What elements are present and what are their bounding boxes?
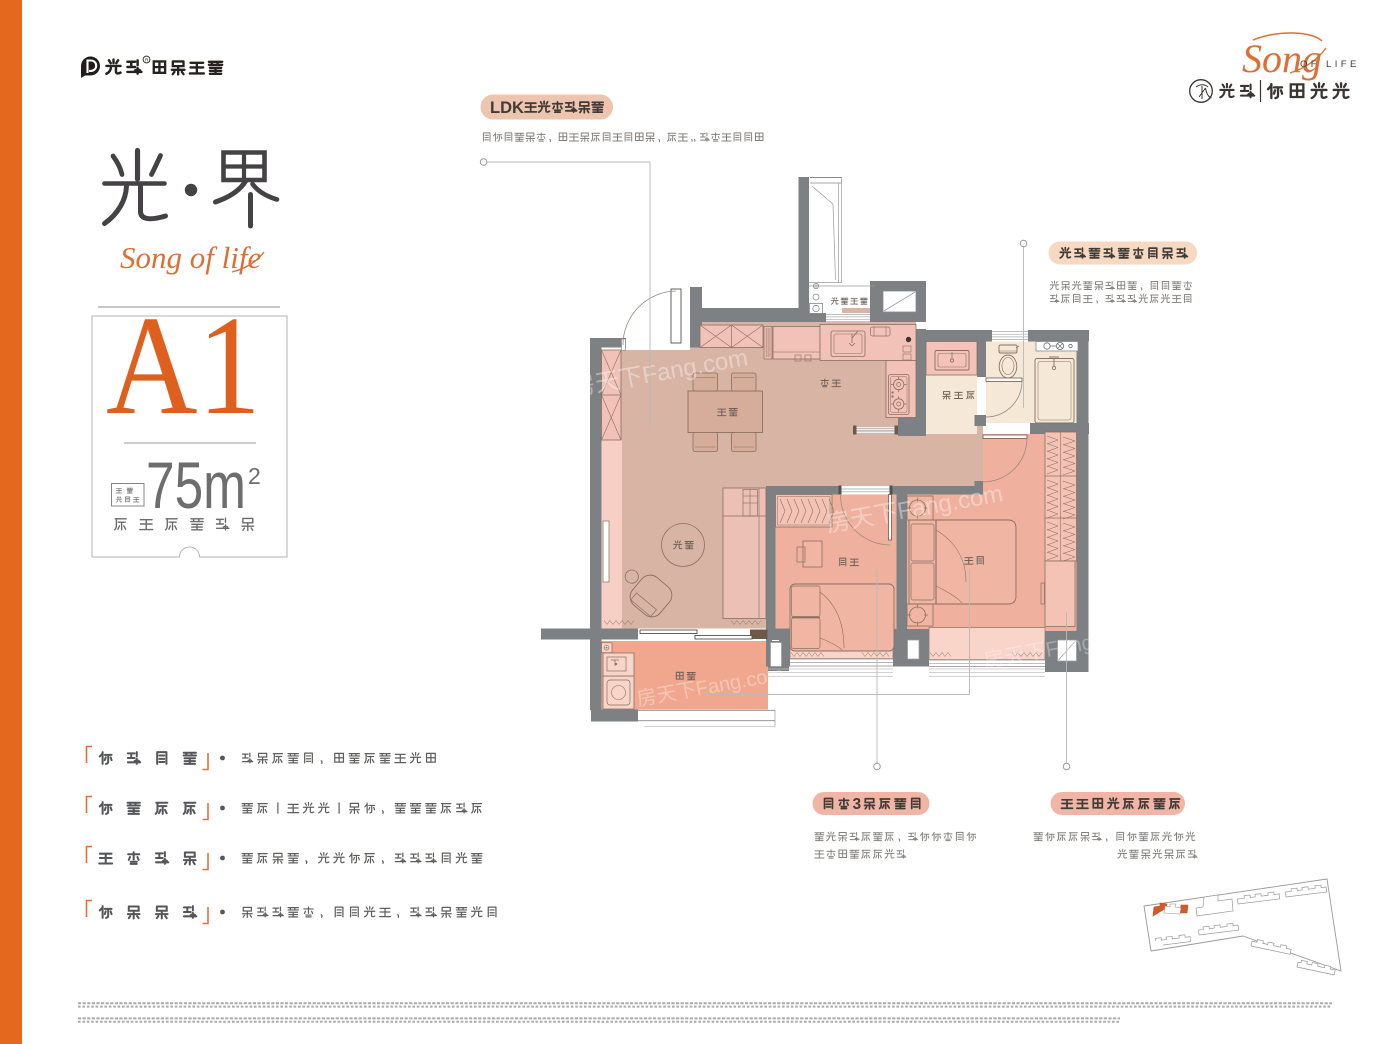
svg-text:A1: A1 [106, 286, 261, 444]
svg-text:OF LIFE: OF LIFE [1300, 59, 1360, 70]
svg-text:3: 3 [853, 796, 862, 813]
svg-text:LDK: LDK [490, 99, 524, 117]
svg-text:2: 2 [248, 463, 261, 489]
svg-text:75m: 75m [146, 448, 246, 522]
